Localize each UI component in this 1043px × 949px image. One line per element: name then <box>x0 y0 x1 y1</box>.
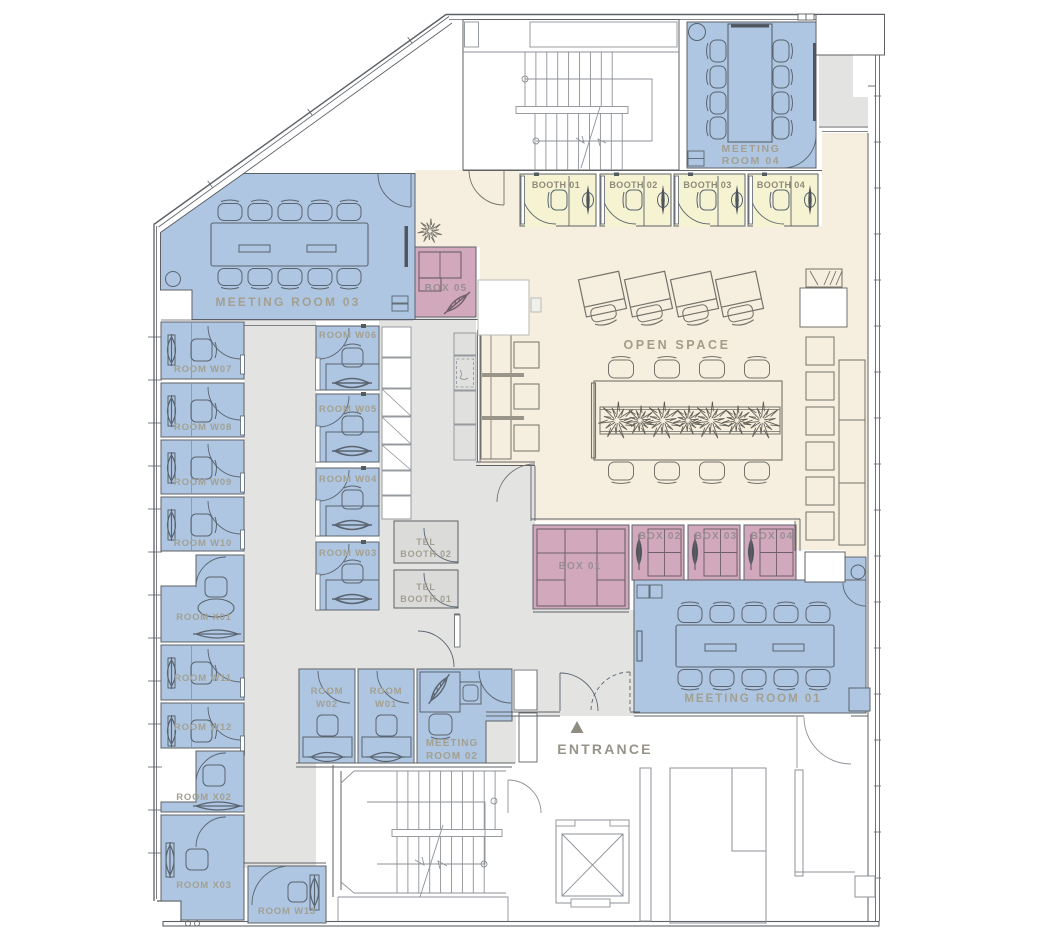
svg-text:W01: W01 <box>375 699 397 710</box>
svg-text:ROOM 04: ROOM 04 <box>722 155 780 167</box>
svg-text:ROOM W13: ROOM W13 <box>258 906 316 917</box>
svg-text:ROOM W11: ROOM W11 <box>174 673 232 684</box>
svg-text:OPEN SPACE: OPEN SPACE <box>623 338 730 352</box>
svg-text:TEL: TEL <box>416 537 435 547</box>
svg-text:ROOM W10: ROOM W10 <box>174 538 232 549</box>
svg-text:BOX 03: BOX 03 <box>695 531 738 542</box>
svg-text:ROOM W07: ROOM W07 <box>174 364 232 375</box>
svg-text:ROOM X02: ROOM X02 <box>176 792 232 803</box>
svg-text:BOOTH 02: BOOTH 02 <box>609 180 657 190</box>
svg-text:BOX 01: BOX 01 <box>559 561 602 572</box>
svg-text:ROOM W09: ROOM W09 <box>174 477 232 488</box>
svg-text:BOOTH 01: BOOTH 01 <box>532 180 580 190</box>
svg-text:ROOM W03: ROOM W03 <box>319 548 377 559</box>
svg-text:MEETING: MEETING <box>721 143 780 155</box>
svg-text:ROOM W08: ROOM W08 <box>174 422 232 433</box>
svg-text:MEETING ROOM 01: MEETING ROOM 01 <box>684 693 821 705</box>
svg-text:ROOM W04: ROOM W04 <box>319 474 377 485</box>
svg-text:BOOTH 03: BOOTH 03 <box>683 180 731 190</box>
svg-text:MEETING ROOM 03: MEETING ROOM 03 <box>215 295 360 309</box>
svg-text:BOX 02: BOX 02 <box>639 531 682 542</box>
svg-text:BOX 05: BOX 05 <box>425 283 468 294</box>
svg-text:ROOM W12: ROOM W12 <box>174 722 232 733</box>
svg-text:ROOM W06: ROOM W06 <box>319 330 377 341</box>
svg-text:MEETING: MEETING <box>426 738 479 749</box>
svg-text:TEL: TEL <box>416 582 435 592</box>
svg-text:BOOTH 04: BOOTH 04 <box>757 180 805 190</box>
svg-text:W02: W02 <box>316 699 338 710</box>
svg-text:ROOM: ROOM <box>311 686 344 697</box>
svg-text:BOX 04: BOX 04 <box>751 531 794 542</box>
svg-text:ROOM X01: ROOM X01 <box>176 612 232 623</box>
svg-text:BOOTH 01: BOOTH 01 <box>400 594 451 604</box>
svg-text:ENTRANCE: ENTRANCE <box>557 741 652 757</box>
svg-text:ROOM X03: ROOM X03 <box>176 880 232 891</box>
svg-text:ROOM 02: ROOM 02 <box>426 751 478 762</box>
svg-text:BOOTH 02: BOOTH 02 <box>400 549 451 559</box>
svg-text:ROOM W05: ROOM W05 <box>319 404 377 415</box>
svg-text:ROOM: ROOM <box>370 686 403 697</box>
